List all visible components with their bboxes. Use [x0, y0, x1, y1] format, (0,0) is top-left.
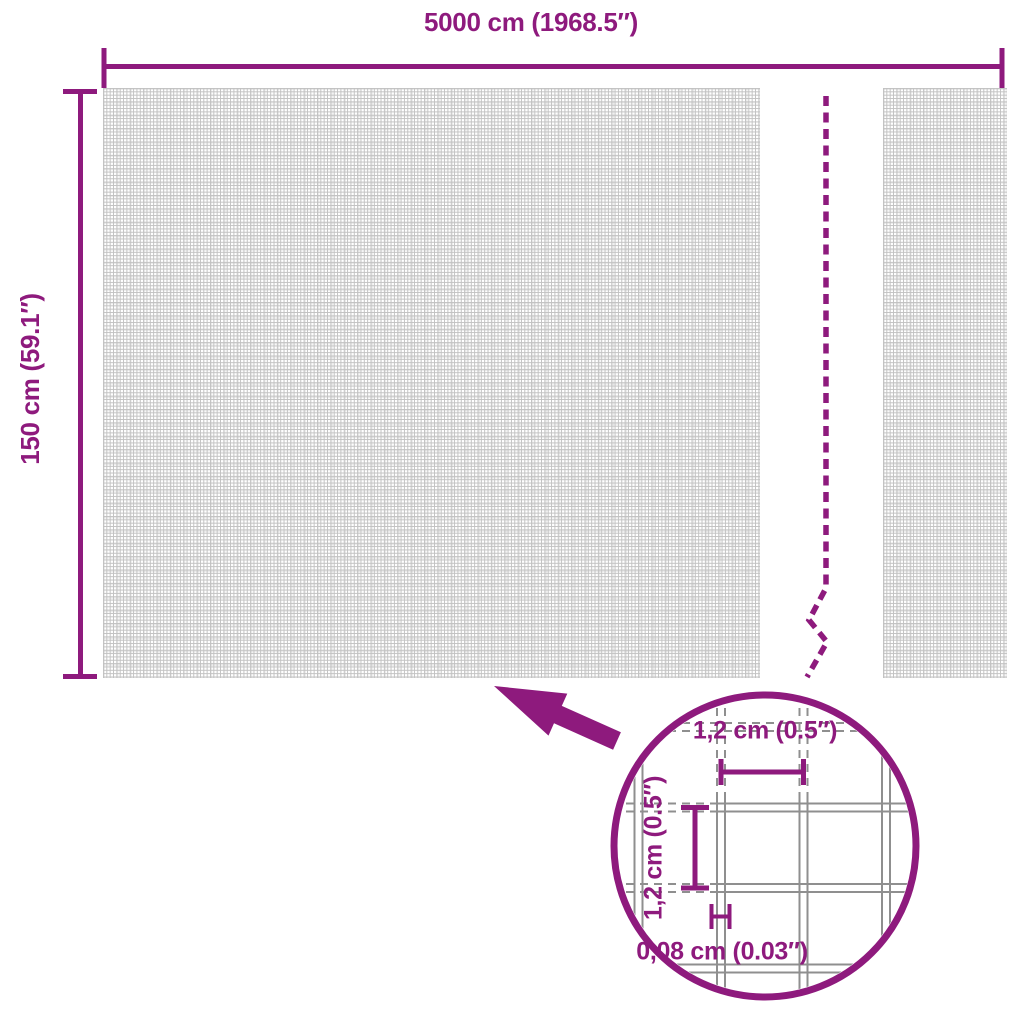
detail-mesh-height-label: 1,2 cm (0.5″) — [642, 776, 667, 920]
detail-arrow-icon — [494, 686, 621, 750]
detail-mesh-width-label: 1,2 cm (0.5″) — [693, 719, 837, 744]
product-dimension-diagram: 5000 cm (1968.5″) 150 cm (59.1″) 1,2 cm … — [0, 0, 1024, 1024]
break-line-dashed — [807, 96, 827, 677]
width-dimension — [104, 48, 1002, 88]
height-dimension-label: 150 cm (59.1″) — [17, 293, 43, 465]
diagram-linework — [0, 0, 1024, 1024]
detail-wire-thickness-label: 0,08 cm (0.03″) — [636, 940, 807, 965]
width-dimension-label: 5000 cm (1968.5″) — [424, 9, 638, 35]
height-dimension — [63, 92, 97, 677]
